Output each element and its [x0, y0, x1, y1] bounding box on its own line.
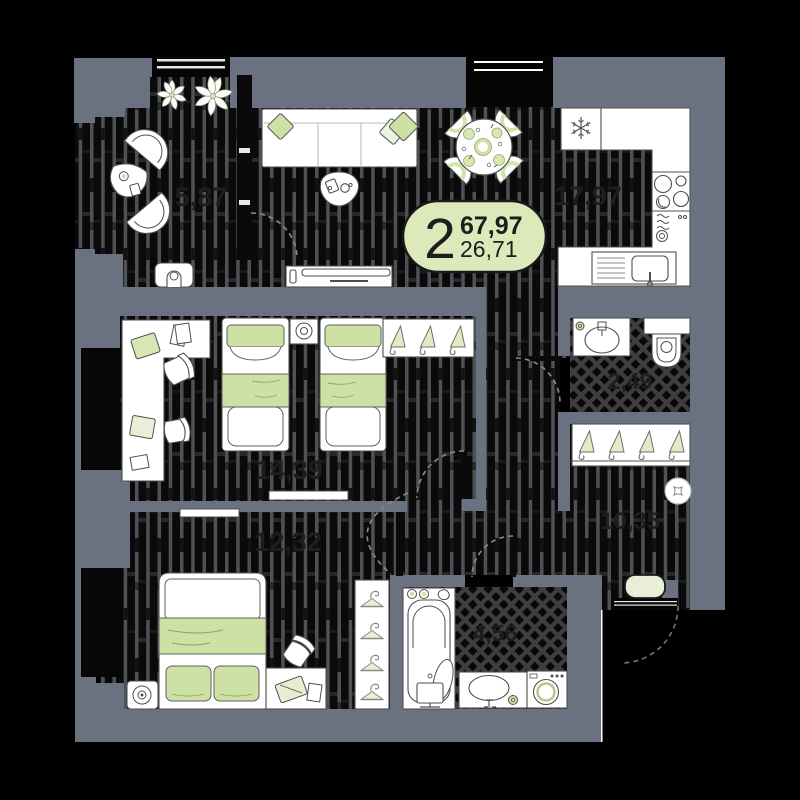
svg-text:14,39: 14,39	[255, 455, 323, 485]
svg-text:10,35: 10,35	[600, 508, 660, 535]
svg-text:2,49: 2,49	[608, 368, 653, 394]
svg-text:12,32: 12,32	[254, 527, 322, 557]
svg-text:26,71: 26,71	[460, 236, 518, 262]
svg-text:2: 2	[424, 207, 456, 271]
svg-text:5,87: 5,87	[175, 182, 228, 212]
svg-text:4,56: 4,56	[473, 620, 518, 646]
svg-text:17,97: 17,97	[554, 181, 622, 211]
